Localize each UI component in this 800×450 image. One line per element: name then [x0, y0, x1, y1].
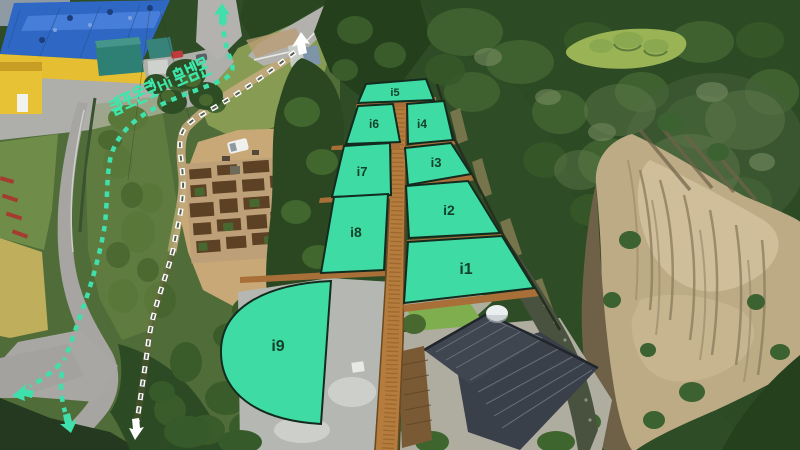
svg-text:i5: i5: [390, 87, 399, 99]
svg-text:i6: i6: [369, 117, 379, 131]
svg-text:i2: i2: [443, 202, 455, 218]
svg-text:i3: i3: [431, 155, 442, 170]
svg-text:i9: i9: [271, 338, 284, 355]
svg-text:i4: i4: [417, 117, 427, 131]
svg-text:i7: i7: [357, 164, 368, 179]
svg-text:i8: i8: [350, 224, 362, 240]
svg-text:i1: i1: [459, 261, 472, 278]
